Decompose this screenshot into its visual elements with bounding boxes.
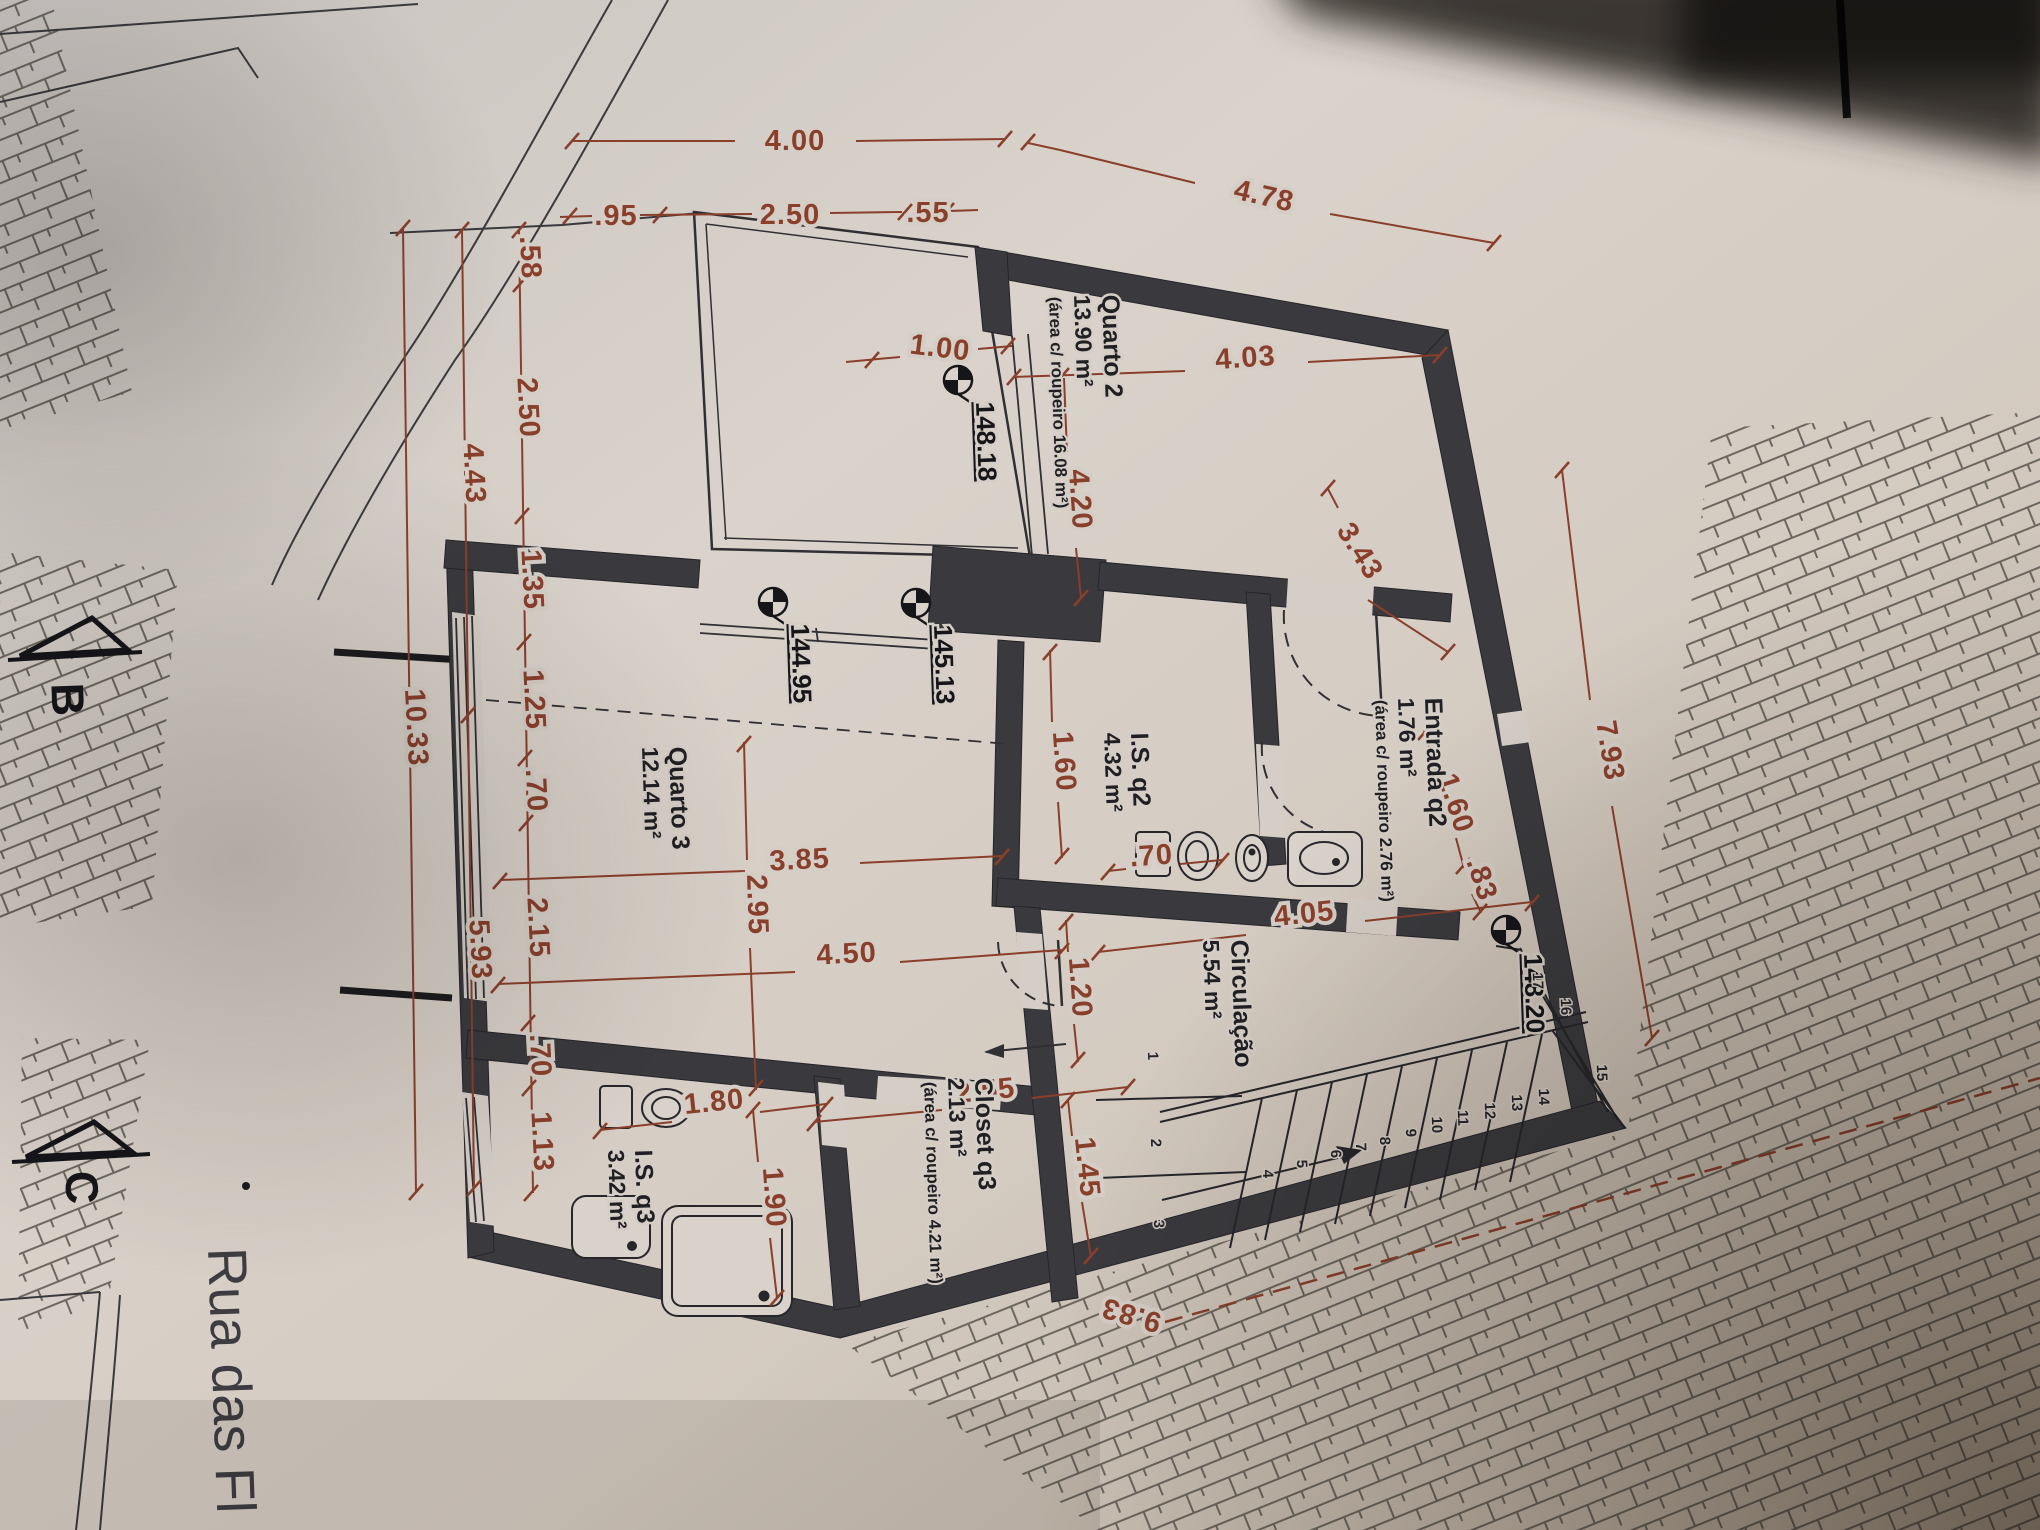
- wall-isq2-west: [992, 640, 1024, 908]
- dim-3-85: 3.85: [769, 842, 831, 877]
- dim-0-58: .58: [513, 235, 547, 280]
- room-label-closet-q3: Closet q3: [969, 1077, 1001, 1190]
- dim-1-90: 1.90: [756, 1166, 792, 1229]
- dim-1-80: 1.80: [682, 1083, 745, 1121]
- dim-4-00: 4.00: [765, 125, 825, 157]
- room-label-quarto2: Quarto 2: [1096, 294, 1128, 398]
- dim-4-03: 4.03: [1214, 340, 1277, 376]
- dim-4-50: 4.50: [816, 936, 878, 971]
- dim-0-95: .95: [594, 200, 637, 232]
- room-area-quarto2: 13.90 m²: [1069, 294, 1098, 387]
- dim-2-50-top: 2.50: [760, 199, 820, 231]
- level-148-18: 148.18: [970, 401, 1003, 482]
- level-145-13: 145.13: [928, 624, 961, 705]
- dim-2-50-left: 2.50: [510, 377, 545, 439]
- room-label-is-q3: I.S. q3: [629, 1149, 660, 1224]
- room-area-closet-q3: 2.13 m²: [943, 1077, 972, 1157]
- floor-plan-photo: 4.00.952.50.554.784.031.004.203.852.954.…: [0, 0, 2040, 1530]
- room-area-is-q3: 3.42 m²: [603, 1149, 632, 1229]
- level-144-95: 144.95: [785, 623, 818, 704]
- dim-0-55: .55: [906, 197, 949, 229]
- floor-plan-drawing: 4.00.952.50.554.784.031.004.203.852.954.…: [0, 0, 2040, 1530]
